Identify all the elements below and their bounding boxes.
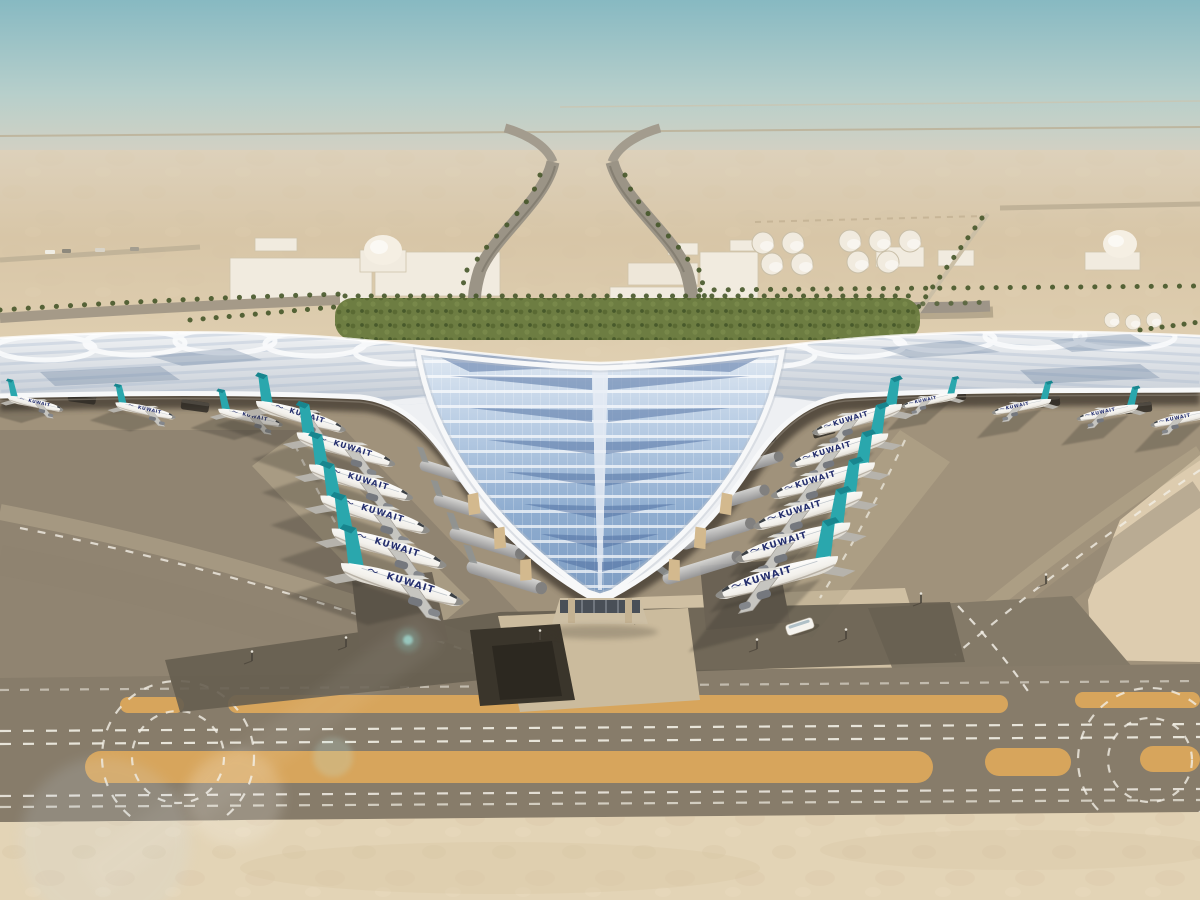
airport-rendering: KUWAIT KUWAIT [0,0,1200,900]
sky [0,0,1200,172]
landscaped-hedge [335,298,920,340]
terminal-entrance [542,598,658,639]
tunnel-mouth [492,641,562,700]
